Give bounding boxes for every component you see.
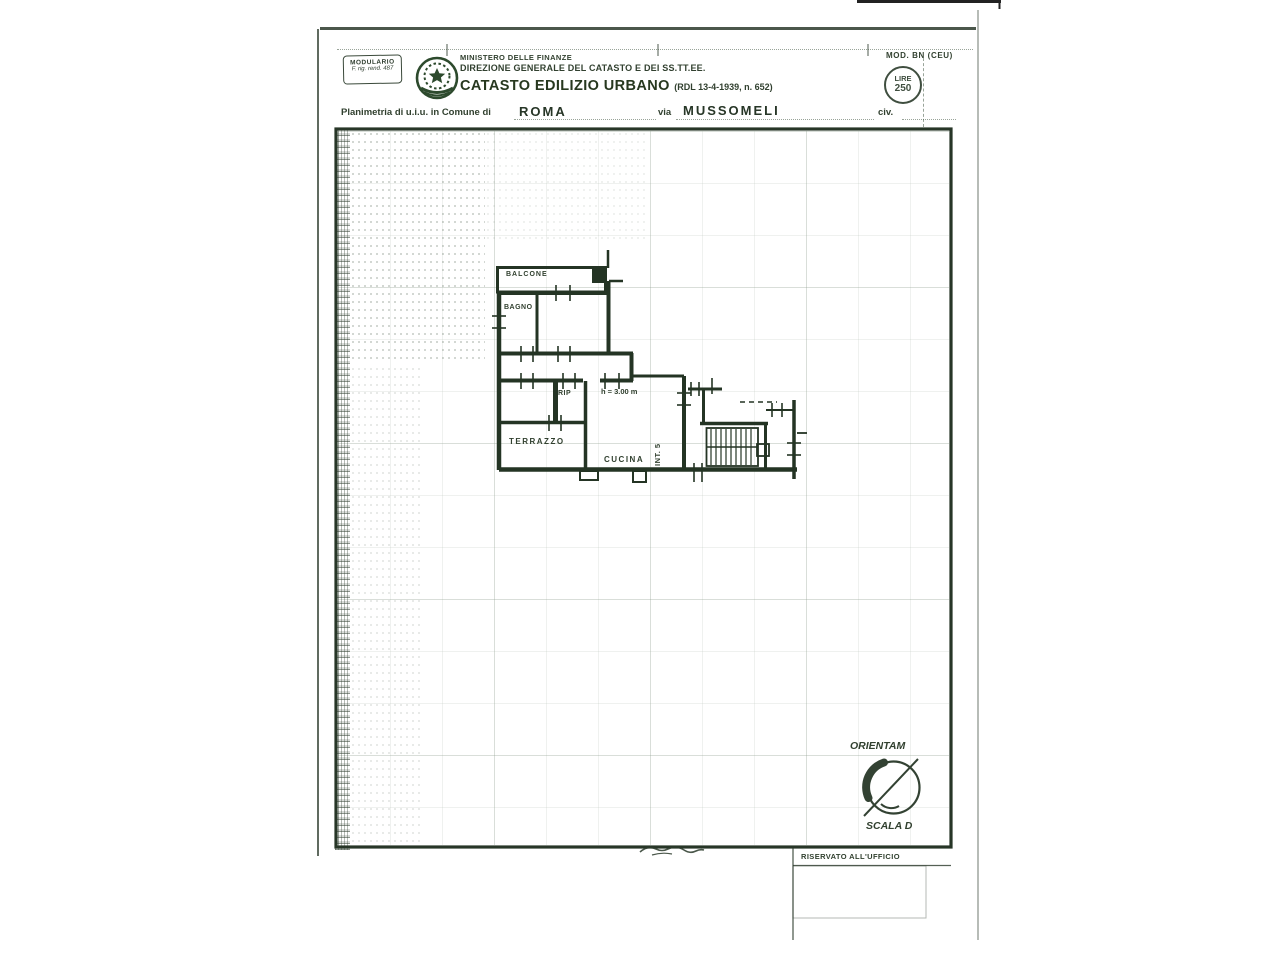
fee-stamp-currency: LIRE (886, 74, 920, 83)
via-label: via (658, 107, 671, 118)
scanned-cadastral-document: MODULARIO F. rig. rend. 487 MINISTERO DE… (0, 0, 1280, 960)
form-line-prefix: Planimetria di u.i.u. in Comune di (341, 107, 491, 118)
via-dotted-leader (676, 119, 874, 120)
registry-title: CATASTO EDILIZIO URBANO (460, 78, 670, 94)
scan-line-art (0, 0, 1280, 960)
form-rule-top (337, 49, 973, 50)
unit-number-label: INT. 5 (653, 443, 662, 466)
via-value: MUSSOMELI (683, 103, 780, 118)
modulario-ref: F. rig. rend. 487 (344, 66, 401, 74)
ministry-title: MINISTERO DELLE FINANZE (460, 53, 572, 62)
state-emblem-icon (417, 58, 457, 98)
registry-law: (RDL 13-4-1939, n. 652) (674, 82, 772, 92)
compass-icon (864, 759, 920, 816)
room-label-cucina: CUCINA (604, 455, 644, 464)
modulario-box: MODULARIO F. rig. rend. 487 (343, 54, 403, 84)
room-label-balcone: BALCONE (506, 271, 548, 278)
scale-label: SCALA D (866, 820, 912, 832)
room-label-terrazzo: TERRAZZO (509, 437, 565, 446)
fee-stamp-amount: 250 (886, 83, 920, 94)
room-label-bagno: BAGNO (504, 304, 533, 311)
civ-dotted-leader (902, 119, 956, 120)
fee-stamp: LIRE 250 (884, 66, 922, 104)
ceiling-height-note: h = 3.00 m (601, 387, 637, 396)
form-rule-vertical (923, 58, 924, 127)
orientation-label: ORIENTAM (850, 740, 905, 752)
office-box-label: RISERVATO ALL'UFFICIO (801, 852, 900, 861)
directorate-title: DIREZIONE GENERALE DEL CATASTO E DEI SS.… (460, 63, 706, 73)
comune-value: ROMA (519, 104, 567, 119)
civ-label: civ. (878, 107, 893, 118)
mod-code: MOD. BN (CEU) (886, 51, 953, 60)
comune-dotted-leader (514, 119, 656, 120)
room-label-rip: RIP (558, 390, 571, 397)
office-box-lines (793, 848, 951, 940)
stairs-hatch (706, 428, 758, 466)
